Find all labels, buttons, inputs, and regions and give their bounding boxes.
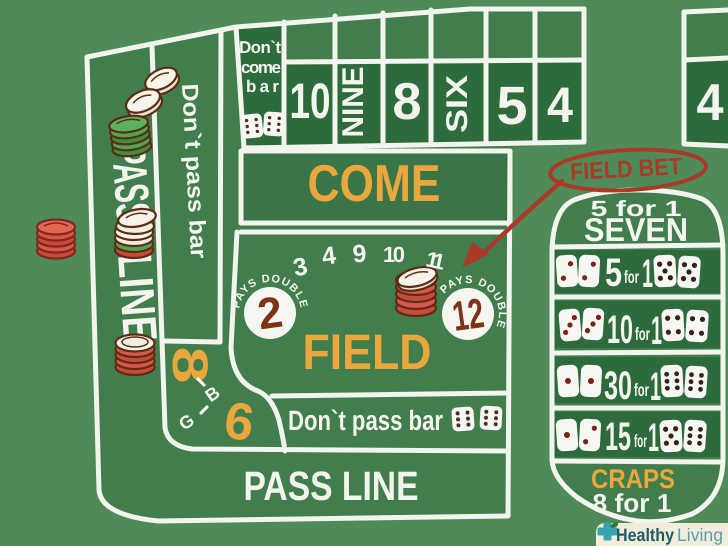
svg-text:4: 4 [547, 77, 573, 133]
svg-text:LINE: LINE [107, 252, 166, 343]
svg-text:4: 4 [697, 74, 724, 132]
svg-text:1: 1 [648, 416, 659, 460]
svg-text:for: for [624, 267, 639, 287]
svg-text:SIX: SIX [441, 75, 474, 133]
svg-text:10: 10 [290, 73, 331, 129]
svg-text:Healthy: Healthy [616, 525, 674, 545]
svg-text:1: 1 [651, 309, 662, 353]
svg-text:15: 15 [605, 415, 631, 459]
svg-text:8: 8 [393, 73, 422, 131]
svg-text:Living: Living [677, 525, 723, 545]
svg-text:FIELD: FIELD [303, 324, 432, 380]
svg-text:for: for [634, 380, 649, 400]
svg-text:9: 9 [352, 240, 368, 269]
svg-text:PASS LINE: PASS LINE [244, 463, 419, 509]
svg-text:Don`t: Don`t [239, 38, 281, 57]
svg-text:bar: bar [246, 77, 279, 96]
svg-text:5: 5 [605, 251, 622, 295]
svg-text:for: for [634, 431, 647, 451]
svg-text:10: 10 [383, 242, 405, 267]
svg-text:8 for 1: 8 for 1 [593, 488, 672, 518]
svg-text:SEVEN: SEVEN [584, 211, 688, 248]
svg-text:for: for [635, 324, 650, 344]
svg-text:Don`t pass bar: Don`t pass bar [288, 405, 443, 436]
svg-text:12: 12 [449, 289, 486, 340]
svg-text:30: 30 [604, 364, 632, 408]
svg-text:COME: COME [308, 155, 441, 213]
svg-text:10: 10 [607, 308, 633, 352]
svg-text:NINE: NINE [337, 67, 370, 138]
svg-text:1: 1 [650, 365, 661, 409]
svg-text:come: come [241, 58, 281, 77]
svg-text:8: 8 [162, 347, 218, 384]
svg-text:1: 1 [642, 252, 653, 296]
svg-text:5: 5 [497, 76, 528, 136]
